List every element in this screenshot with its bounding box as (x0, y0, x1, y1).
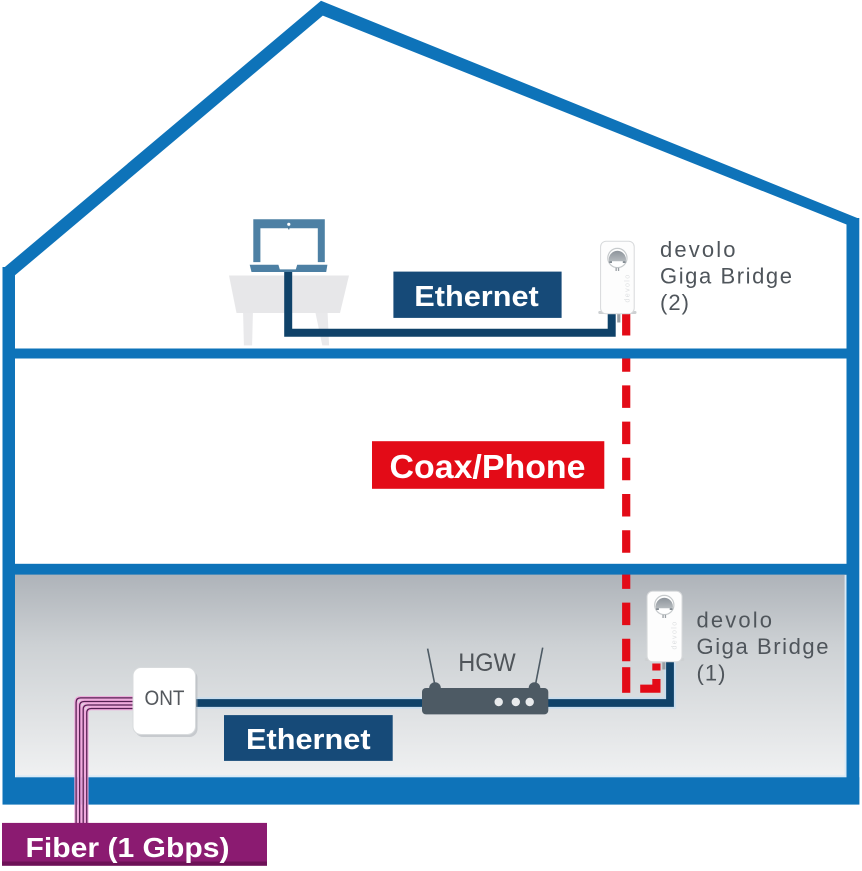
svg-text:Fiber (1 Gbps): Fiber (1 Gbps) (26, 832, 230, 863)
svg-text:HGW: HGW (458, 649, 516, 677)
svg-text:Giga Bridge: Giga Bridge (697, 634, 829, 659)
svg-text:Giga Bridge: Giga Bridge (660, 264, 792, 289)
svg-text:ONT: ONT (145, 686, 185, 710)
svg-text:devolo: devolo (671, 620, 678, 649)
svg-text:(1): (1) (697, 661, 726, 686)
svg-text:(2): (2) (660, 290, 689, 315)
svg-text:devolo: devolo (625, 273, 632, 302)
svg-text:devolo: devolo (697, 608, 773, 633)
svg-text:Ethernet: Ethernet (246, 724, 371, 756)
svg-text:devolo: devolo (660, 237, 736, 262)
svg-text:Coax/Phone: Coax/Phone (390, 448, 586, 485)
svg-text:Ethernet: Ethernet (414, 281, 539, 313)
